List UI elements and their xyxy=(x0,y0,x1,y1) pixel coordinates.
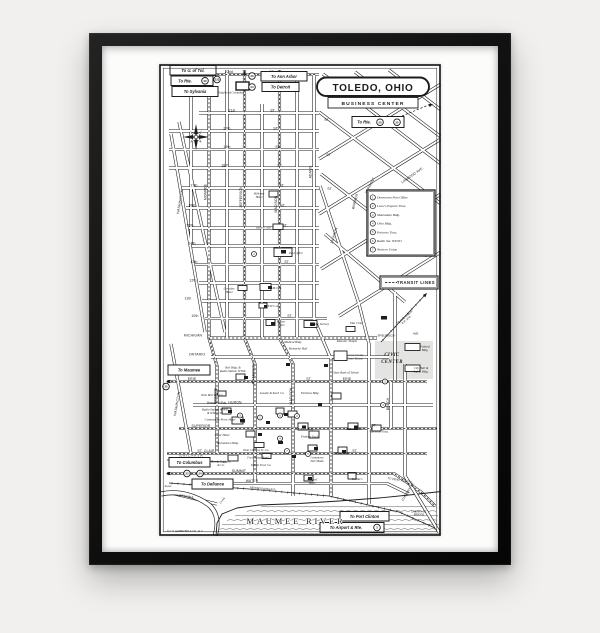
street-label-st: ST. xyxy=(279,184,284,188)
lorraine-hotel-label: LorraineHotel xyxy=(222,287,235,294)
direction-label-to-rte: To Rte. xyxy=(178,78,192,83)
city-hall-safety-bldg-label: City Hall &Safety Bldg. xyxy=(414,366,429,373)
street-label-ontario: ONTARIO xyxy=(189,353,205,357)
route-shield-number: 223 xyxy=(215,78,220,82)
street-label-erie: ERIE xyxy=(343,377,352,381)
street-label-17th: 17th xyxy=(190,184,197,188)
mat-board: 22nd21st20th19th18th17th16th15th14th13th… xyxy=(102,46,498,552)
sears-roebuck-co-label: Sears, Roebuck& Co. xyxy=(211,460,231,467)
street-label-15th: 15th xyxy=(186,224,193,228)
building-block xyxy=(381,316,387,320)
street-label-summit: SUMMIT xyxy=(232,469,246,473)
map-print: 22nd21st20th19th18th17th16th15th14th13th… xyxy=(159,64,441,536)
willard-hotel-label: Willard Hotel xyxy=(346,427,363,431)
rail-tick xyxy=(343,498,344,500)
street-casing xyxy=(207,484,409,495)
lucas-county-court-house-label: Lucas CountyCourt House xyxy=(345,353,364,360)
to-n-y-c-r-r-sta-label: TO N.Y.C. R.R. STA. xyxy=(179,453,204,457)
street-label-19th: 19th xyxy=(223,145,230,149)
building-footprint xyxy=(346,327,355,332)
building-footprint xyxy=(236,374,245,380)
direction-label-to-columbus: To Columbus xyxy=(177,460,204,465)
direction-label-to-port-clinton: To Port Clinton xyxy=(350,514,380,519)
fort-meigs-hotel-label: Fort Meigs Hotel xyxy=(246,456,269,460)
legend-item-loew-s-esquire-thea: Loew's Esquire Thea. xyxy=(376,204,406,208)
legend-item-western-union: Western Union xyxy=(377,248,397,252)
street-label-water: WATER xyxy=(246,479,259,483)
direction-label-to-u-of-tol: To U. of Tol. xyxy=(181,68,204,73)
street-label-madison: MADISON xyxy=(289,387,293,404)
street-label-st-clair: ST. CLAIR xyxy=(197,449,215,453)
street-label-16th: 16th xyxy=(188,204,195,208)
building-footprint xyxy=(332,393,341,399)
street-label-21st: 21st xyxy=(228,109,235,113)
tiedtke-s-label: Tiedtke's xyxy=(352,477,364,481)
street-label-beech: BEECH xyxy=(386,397,390,410)
river-label: MAUMEE RIVER xyxy=(246,516,345,526)
building-footprint xyxy=(405,344,420,351)
building-block xyxy=(318,403,322,406)
street-label-st: ST. xyxy=(284,260,289,264)
map-title: TOLEDO, OHIO xyxy=(333,83,414,94)
toledo-trust-co-label: Toledo Trust Co. xyxy=(251,463,272,467)
building-footprint xyxy=(246,431,255,437)
masonic-temple-label: Masonic Temple xyxy=(336,339,358,343)
lasalle-koch-co-label: Lasalle & Koch Co. xyxy=(259,391,285,395)
street-fill xyxy=(171,344,191,454)
street-casing xyxy=(320,186,369,504)
elks-club-label: Elks Club xyxy=(349,321,363,325)
broadcast-bldg-label: Broadcast Bldg. xyxy=(207,401,227,405)
street-label-13th: 13th xyxy=(190,260,197,264)
building-block xyxy=(314,447,318,450)
legend-item-manhattan-bldg: Manhattan Bldg. xyxy=(376,213,400,217)
direction-label-to-maumee: To Maumee xyxy=(178,368,201,373)
building-footprint xyxy=(238,286,247,291)
street-label-jefferson: JEFFERSON xyxy=(252,363,256,385)
product-photo: 22nd21st20th19th18th17th16th15th14th13th… xyxy=(0,33,600,633)
street-label-st: ST. xyxy=(270,109,275,113)
street-label-12th: 12th xyxy=(189,279,196,283)
river-wave xyxy=(261,506,436,507)
state-bank-of-toledo-label: State Bank of Toledo xyxy=(333,371,359,375)
street-label-st: ST. xyxy=(326,153,331,157)
direction-label-to-sylvania: To Sylvania xyxy=(184,89,207,94)
building-block xyxy=(244,376,248,379)
route-shield-number: 25 xyxy=(164,385,168,389)
street-label-st: ST. xyxy=(327,187,332,191)
ottawa-label: OTTAWA xyxy=(178,493,194,499)
building-block xyxy=(292,455,296,458)
public-library-label: Public Library xyxy=(310,322,330,326)
building-block xyxy=(281,250,286,254)
river-wave xyxy=(217,533,441,534)
direction-label-to-detroit: To Detroit xyxy=(271,85,291,90)
street-fill xyxy=(207,484,409,495)
building-block xyxy=(258,433,262,436)
route-shield-number: 25 xyxy=(395,120,399,124)
street-label-washington: WASHINGTON xyxy=(173,391,181,416)
ohio-bell-tel-co-label: Ohio Bell Tel. Co. xyxy=(201,393,224,397)
legend-item-downtown-post-office: Downtown Post Office xyxy=(376,196,408,200)
rail-tick xyxy=(384,508,385,510)
street-label-st: ST. xyxy=(371,424,376,428)
route-shield-number: 24 xyxy=(250,85,254,89)
picture-frame: 22nd21st20th19th18th17th16th15th14th13th… xyxy=(89,33,511,565)
rail-tick xyxy=(367,504,368,506)
milner-hotel-label: MilnerHotel xyxy=(276,320,286,327)
street-label-monroe: MONROE xyxy=(204,183,208,200)
street-label-adams: ADAMS xyxy=(309,165,313,178)
map-svg: 22nd21st20th19th18th17th16th15th14th13th… xyxy=(159,64,441,536)
street-label-11th: 11th xyxy=(185,297,192,301)
rail-tick xyxy=(338,497,339,499)
building-footprint xyxy=(334,351,347,361)
building-block xyxy=(286,363,290,366)
toledo-club-label: Toledo Club xyxy=(255,226,271,230)
street-label-jefferson: JEFFERSON xyxy=(239,186,243,208)
to-ann-arbor-r-r-sta-label: TO ANN ARBORR.R. STA. xyxy=(395,309,415,327)
street-label-st: ST. xyxy=(352,449,357,453)
direction-label-to-defiance: To Defiance xyxy=(201,482,225,487)
direction-label-to-rte: To Rte. xyxy=(357,120,371,125)
street-label-20th: 20th xyxy=(223,127,230,131)
compass-hub xyxy=(194,135,198,139)
street-label-st: ST. xyxy=(277,164,282,168)
street-label-14th: 14th xyxy=(188,242,195,246)
building-block xyxy=(266,421,270,424)
legend-item-radio-sta-wtod: Radio Sta. WTOD xyxy=(376,239,402,243)
street-label-michigan: MICHIGAN xyxy=(184,334,203,338)
spielbusch-label: SPIELBUSCH xyxy=(377,334,394,338)
creek-label: Creek xyxy=(218,496,226,505)
transit-legend-label: TRANSIT LINES xyxy=(397,280,435,285)
building-block xyxy=(284,413,288,416)
street-label-madison: MADISON xyxy=(274,195,278,212)
map-subtitle: BUSINESS CENTER xyxy=(342,101,405,107)
street-fill xyxy=(320,186,369,504)
commodore-perry-hotel-label: Commodore Perry Hotel xyxy=(205,418,236,422)
ave-label: AVE. xyxy=(413,332,419,336)
street-label-st: ST. xyxy=(273,127,278,131)
richardson-bldg-label: Richardson Bldg. xyxy=(216,441,239,445)
building-block xyxy=(271,322,275,325)
building-footprint xyxy=(254,443,264,448)
secor-hotel-label: Secor Hotel xyxy=(215,433,230,437)
palace-thea-label: Palace Thea. xyxy=(333,451,351,455)
building-block xyxy=(240,419,245,423)
legend-item-princess-thea: Princess Thea. xyxy=(376,230,397,234)
direction-label-to-ann-arbor: To Ann Arbor xyxy=(271,74,297,79)
building-block xyxy=(228,410,232,413)
route-shield-number: 20 xyxy=(378,120,382,124)
pennsylvania-r-r-label: PENNSYLVANIA R.R. xyxy=(250,485,277,491)
produce-exch-label: Produce Exch. xyxy=(300,435,319,439)
nicholas-bldg-label: Nicholas Bldg. xyxy=(300,391,320,395)
street-label-st: ST. xyxy=(287,314,292,318)
legend-item-ohio-bldg: Ohio Bldg. xyxy=(377,222,392,226)
building-block xyxy=(278,441,283,444)
edison-bldg-label: Edison Bldg. xyxy=(297,427,314,431)
street-label-st: ST. xyxy=(282,224,287,228)
street-label-st: ST. xyxy=(280,204,285,208)
commerce-nat-l-bank-label: CommerceNat'l Bank xyxy=(309,456,324,463)
street-label-erie: ERIE xyxy=(188,377,197,381)
route-shield-number: 24 xyxy=(198,472,202,476)
route-shield-number: 23 xyxy=(250,74,254,78)
rail-tick xyxy=(361,502,362,504)
post-office-label: Post Office xyxy=(288,251,303,255)
street-label-st: ST. xyxy=(275,145,280,149)
street-label-huron: HURON xyxy=(228,401,242,405)
copyright-label: © C.S. HAMMOND & CO., N.Y. xyxy=(167,529,203,533)
route-shield-number: 23 xyxy=(185,472,189,476)
street-label-st: ST. xyxy=(324,118,329,122)
street-label-18th: 18th xyxy=(221,164,228,168)
knights-of-columbus-label: Knights of Columbus xyxy=(217,91,245,95)
street-label-10th: 10th xyxy=(191,314,198,318)
building-footprint xyxy=(236,82,249,90)
y-m-c-a-label: Y.M.C.A. xyxy=(270,286,281,290)
memorial-hall-label: Memorial Hall xyxy=(288,347,308,351)
bell-bldg-radio-station-wtol-label: Bell Bldg. &Radio Station WTOL xyxy=(219,366,246,373)
street-label-22nd: 22nd xyxy=(225,70,233,74)
rail-tick xyxy=(355,501,356,503)
ohio-citizens-tr-co-label: Ohio Citizens Tr. Co. xyxy=(243,448,269,452)
street-label-st: ST. xyxy=(306,377,311,381)
valentine-thea-label: Valentine Thea. xyxy=(369,430,388,434)
street-label-superior: SUPERIOR xyxy=(192,424,211,428)
y-w-c-a-label: Y.W.C.A. xyxy=(268,304,279,308)
building-block xyxy=(324,364,328,367)
swan-label: Swan xyxy=(165,484,172,488)
route-shield-number: 20 xyxy=(203,79,207,83)
medical-bldg-label: Medical Bldg. xyxy=(283,340,302,344)
